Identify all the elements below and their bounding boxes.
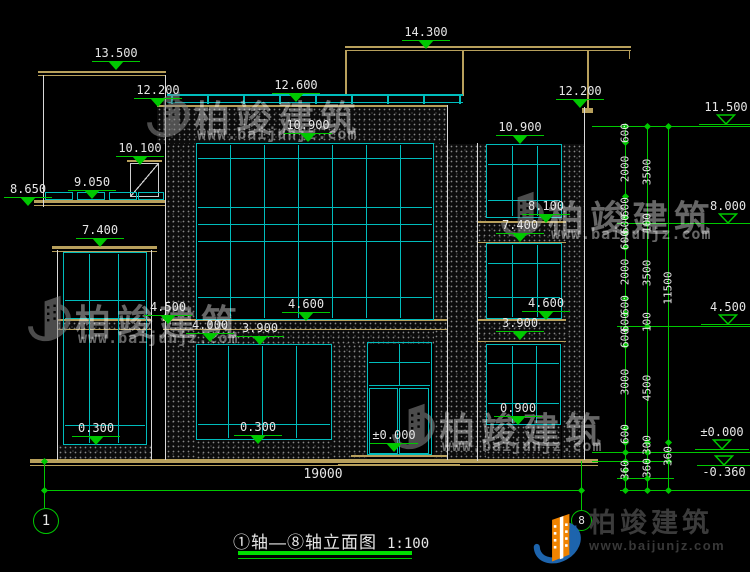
watermark-site-text: www.baijunjz.com [442, 437, 603, 455]
vertical-dim-label: 4500 [641, 375, 654, 402]
slab-roof-line [30, 459, 598, 463]
window-mullion [118, 254, 119, 443]
elevation-triangle-icon [512, 331, 528, 340]
vertical-dim-label: 3500 [641, 260, 654, 287]
window-mullion [488, 263, 560, 264]
railing-post [423, 94, 425, 104]
door-transom-mullion [399, 344, 400, 385]
elevation-triangle-icon [92, 238, 108, 247]
door-transom-bar [369, 385, 430, 386]
window-mullion [512, 245, 513, 317]
window-mullion [198, 224, 432, 225]
elevation-marker: 8.000 [700, 200, 750, 224]
slab-roof-line [345, 46, 631, 48]
elevation-value: ±0.000 [694, 426, 750, 439]
dimension-tick [665, 439, 672, 446]
dimension-line [44, 490, 581, 491]
vertical-dim-label: 600 [619, 123, 632, 143]
elevation-triangle-icon [298, 312, 314, 321]
window-mullion [488, 164, 560, 165]
elevation-value: 4.500 [700, 301, 750, 314]
elevation-value: 9.050 [64, 176, 120, 189]
railing-post [459, 94, 461, 104]
elevation-marker: 3.900 [232, 322, 288, 345]
elevation-value: 0.900 [490, 402, 546, 415]
axis-bubble-1-label: 1 [42, 513, 50, 529]
watermark-building-icon [27, 290, 75, 348]
dimension-tick [665, 123, 672, 130]
dimension-line [44, 461, 45, 508]
drawing-scale: 1:100 [387, 536, 429, 552]
elevation-marker: 10.900 [280, 119, 336, 142]
elevation-triangle-icon [150, 98, 166, 107]
elevation-value: 11.500 [698, 101, 750, 114]
elevation-value: 10.900 [280, 119, 336, 132]
dimension-line [668, 126, 669, 490]
elevation-marker: ±0.000 [366, 429, 422, 452]
window-mullion [488, 363, 559, 364]
window-mullion [298, 145, 299, 318]
elevation-value: 3.900 [492, 317, 548, 330]
elevation-marker: 14.300 [398, 26, 454, 49]
elevation-triangle-icon [84, 190, 100, 199]
window-mullion [366, 145, 367, 318]
slab-roof-line [462, 50, 464, 96]
dimension-tick [41, 487, 48, 494]
dimension-line [592, 461, 672, 462]
wall-edge-line [151, 250, 152, 460]
elevation-value: 0.300 [230, 421, 286, 434]
elevation-triangle-icon [418, 40, 434, 49]
elevation-marker: 10.900 [492, 121, 548, 144]
elevation-triangle-icon [300, 133, 316, 142]
vertical-dim-label: 11500 [662, 271, 675, 304]
elevation-marker: 4.600 [278, 298, 334, 321]
elevation-triangle-icon [20, 197, 36, 206]
vertical-dim-label: 600 [619, 230, 632, 250]
vertical-dim-label: 360 [619, 460, 632, 480]
elevation-marker: 3.900 [492, 317, 548, 340]
elevation-marker: 8.650 [0, 183, 56, 206]
elevation-value: 7.400 [72, 224, 128, 237]
company-logo-brand: 柏竣建筑 [589, 509, 725, 538]
vertical-dim-label: 100 [641, 312, 654, 332]
overall-width-dimension: 19000 [288, 467, 358, 482]
elevation-marker: 10.100 [112, 142, 168, 165]
vertical-dim-label: 3000 [619, 369, 632, 396]
company-logo-site: www.baijunjz.com [589, 538, 725, 553]
company-logo-texts: 柏竣建筑 www.baijunjz.com [589, 509, 725, 553]
wall-hatch-region [332, 344, 367, 460]
vertical-dim-label: 3500 [641, 159, 654, 186]
elevation-value: 10.100 [112, 142, 168, 155]
title-underline-thin [238, 558, 412, 559]
wall-hatch-region [58, 445, 151, 459]
elevation-marker: 11.500 [698, 101, 750, 125]
vertical-dim-label: 600 [619, 328, 632, 348]
elevation-triangle-icon [288, 93, 304, 102]
elevation-marker: -0.360 [696, 455, 750, 479]
slab-roof-line [30, 465, 598, 466]
elevation-triangle-icon [512, 135, 528, 144]
elevation-value: 4.600 [518, 297, 574, 310]
vertical-dim-label: 360 [662, 446, 675, 466]
elevation-triangle-icon [132, 156, 148, 165]
vertical-dim-label: 360 [641, 458, 654, 478]
elevation-marker: 12.200 [130, 84, 186, 107]
elevation-triangle-icon [108, 61, 124, 70]
elevation-marker: 12.200 [552, 85, 608, 108]
elevation-value: 4.000 [182, 319, 238, 332]
elevation-value: 4.500 [140, 301, 196, 314]
elevation-triangle-icon [250, 435, 266, 444]
window-mullion [264, 145, 265, 318]
elevation-value: 10.900 [492, 121, 548, 134]
company-logo-icon [533, 509, 585, 569]
elevation-value: -0.360 [696, 466, 750, 479]
dimension-tick [665, 487, 672, 494]
window-mullion [198, 207, 432, 208]
window-mullion [400, 145, 401, 318]
elevation-triangle-icon [160, 315, 176, 324]
elevation-marker: 0.900 [490, 402, 546, 425]
window-mullion [89, 254, 90, 443]
dimension-tick [622, 487, 629, 494]
dimension-tick [644, 123, 651, 130]
elevation-value: 12.200 [552, 85, 608, 98]
dimension-tick [578, 487, 585, 494]
elevation-value: 3.900 [232, 322, 288, 335]
elevation-triangle-icon [252, 336, 268, 345]
window-mullion [332, 145, 333, 318]
elevation-value: 8.100 [518, 200, 574, 213]
elevation-marker: 7.400 [492, 219, 548, 242]
elevation-value: 13.500 [88, 47, 144, 60]
window-frame [63, 252, 147, 445]
elevation-marker: ±0.000 [694, 426, 750, 450]
elevation-marker: 4.500 [700, 301, 750, 325]
vertical-dim-label: 100 [641, 213, 654, 233]
elevation-triangle-icon [512, 233, 528, 242]
window-mullion [198, 241, 432, 242]
slab-roof-line [38, 71, 166, 73]
elevation-triangle-icon [386, 443, 402, 452]
elevation-value: 7.400 [492, 219, 548, 232]
elevation-marker: 0.300 [230, 421, 286, 444]
dimension-line [581, 461, 582, 510]
company-logo: 柏竣建筑 www.baijunjz.com [533, 509, 725, 569]
dimension-line [620, 490, 750, 491]
elevation-value: 4.600 [278, 298, 334, 311]
elevation-marker: 7.400 [72, 224, 128, 247]
elevation-value: 14.300 [398, 26, 454, 39]
dimension-line [617, 326, 750, 327]
vertical-dim-label: 2000 [619, 259, 632, 286]
window-mullion [198, 158, 432, 159]
elevation-marker: 0.300 [68, 422, 124, 445]
elevation-marker: 13.500 [88, 47, 144, 70]
slab-roof-line [629, 50, 630, 59]
canopy-bracket [138, 192, 164, 200]
elevation-marker: 9.050 [64, 176, 120, 199]
elevation-triangle-icon [88, 436, 104, 445]
dimension-tick [644, 487, 651, 494]
elevation-value: ±0.000 [366, 429, 422, 442]
elevation-value: 8.000 [700, 200, 750, 213]
elevation-value: 12.600 [268, 79, 324, 92]
vertical-dim-label: 2000 [619, 156, 632, 183]
elevation-value: 8.650 [0, 183, 56, 196]
wall-edge-line [57, 250, 58, 460]
elevation-value: 0.300 [68, 422, 124, 435]
slab-roof-line [38, 75, 166, 76]
railing-post [387, 94, 389, 104]
vertical-dim-label: 600 [619, 424, 632, 444]
axis-bubble-1: 1 [33, 508, 59, 534]
window-mullion [230, 145, 231, 318]
drawing-title: ①轴—⑧轴立面图 1:100 [233, 528, 429, 553]
title-underline-thick [238, 551, 412, 555]
elevation-marker: 4.000 [182, 319, 238, 342]
vertical-dim-label: 300 [641, 435, 654, 455]
elevation-triangle-icon [510, 416, 526, 425]
elevation-triangle-icon [202, 333, 218, 342]
dimension-tick [622, 449, 629, 456]
elevation-triangle-icon [572, 99, 588, 108]
slab-roof-line [338, 464, 460, 466]
elevation-drawing-canvas: 13.50012.20014.30012.60012.20010.1009.05… [0, 0, 750, 572]
drawing-title-text: ①轴—⑧轴立面图 [233, 528, 377, 553]
elevation-marker: 12.600 [268, 79, 324, 102]
elevation-value: 12.200 [130, 84, 186, 97]
